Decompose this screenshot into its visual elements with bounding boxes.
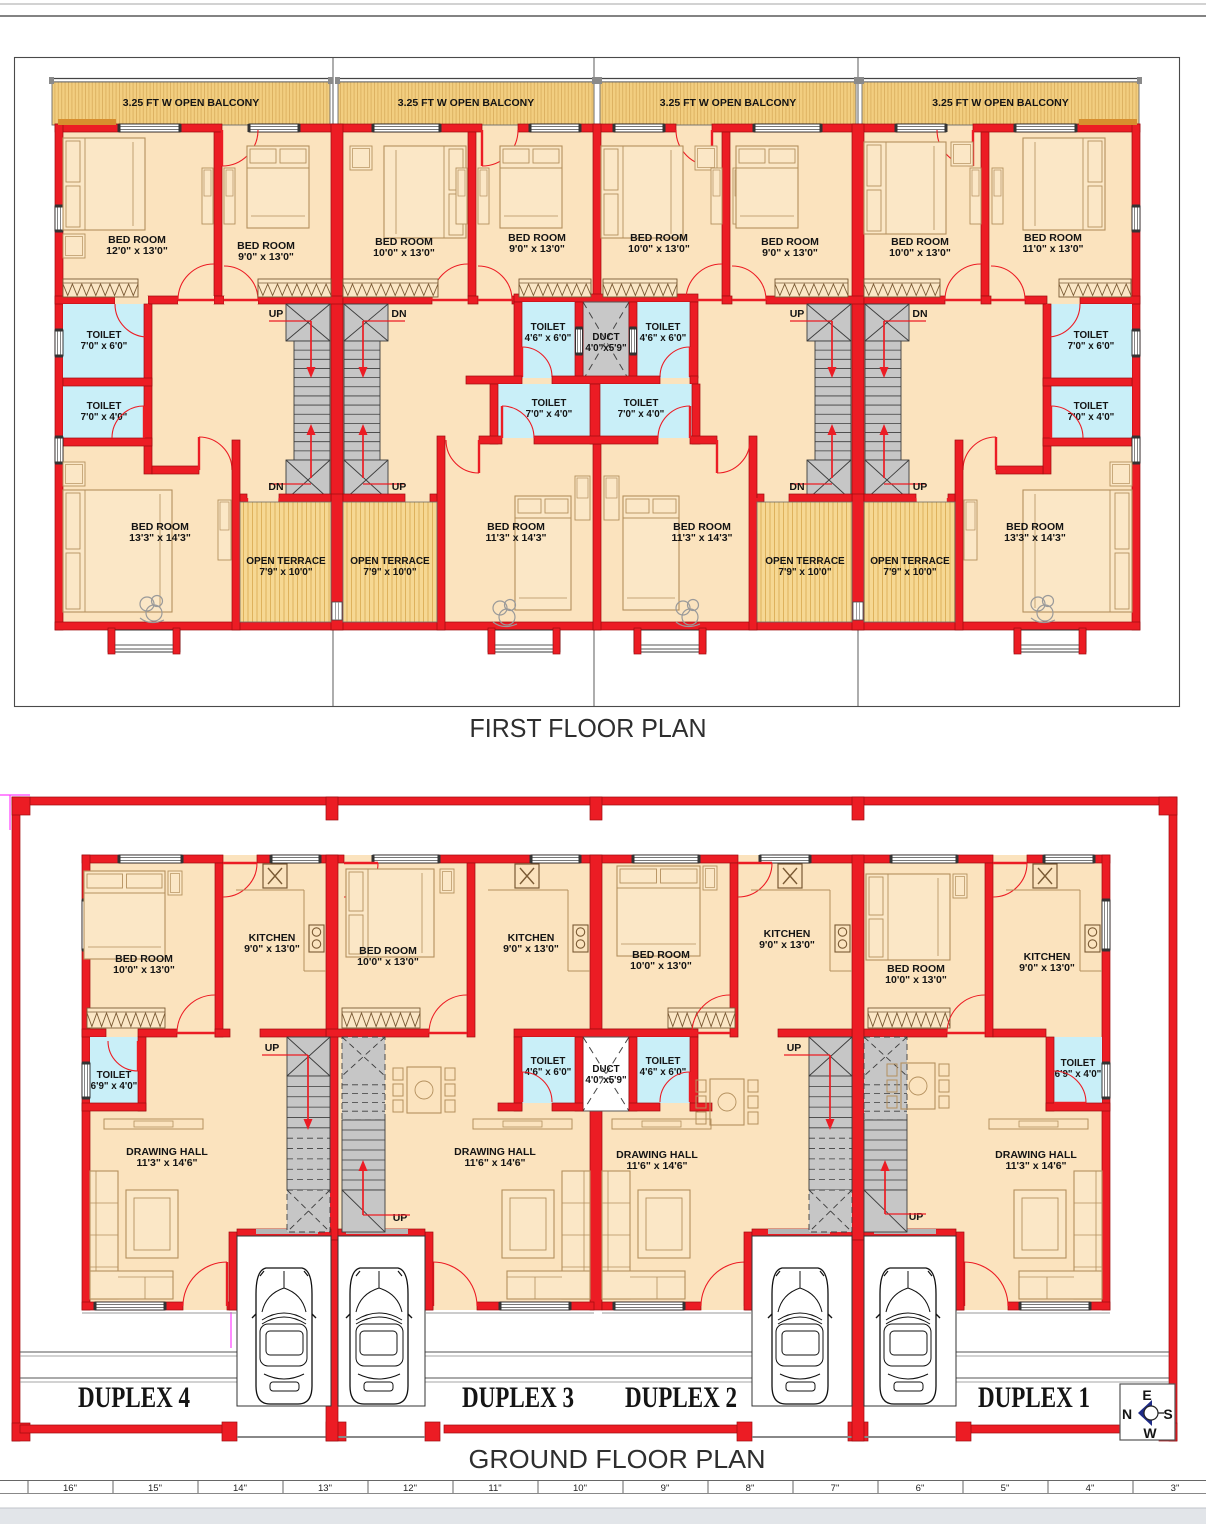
svg-text:7'9" x 10'0": 7'9" x 10'0" <box>883 567 936 578</box>
svg-text:DUCT: DUCT <box>592 332 619 343</box>
svg-text:3.25 FT W OPEN BALCONY: 3.25 FT W OPEN BALCONY <box>123 97 260 109</box>
svg-text:7'0" x 4'0": 7'0" x 4'0" <box>618 409 665 420</box>
svg-text:7": 7" <box>831 1483 840 1494</box>
svg-text:10": 10" <box>573 1483 587 1494</box>
svg-text:9'0" x 13'0": 9'0" x 13'0" <box>238 251 294 263</box>
svg-text:TOILET: TOILET <box>646 322 681 333</box>
svg-text:11'3" x 14'6": 11'3" x 14'6" <box>136 1157 197 1169</box>
svg-text:4'6" x 6'0": 4'6" x 6'0" <box>525 333 572 344</box>
svg-text:OPEN TERRACE: OPEN TERRACE <box>350 556 430 567</box>
svg-text:12'0" x 13'0": 12'0" x 13'0" <box>106 245 168 257</box>
svg-text:3.25 FT W OPEN BALCONY: 3.25 FT W OPEN BALCONY <box>660 97 797 109</box>
svg-text:OPEN TERRACE: OPEN TERRACE <box>870 556 950 567</box>
svg-text:6'9" x 4'0": 6'9" x 4'0" <box>91 1081 138 1092</box>
svg-text:TOILET: TOILET <box>1074 401 1109 412</box>
svg-text:TOILET: TOILET <box>646 1056 681 1067</box>
svg-text:11'0" x 13'0": 11'0" x 13'0" <box>1022 243 1083 255</box>
svg-text:7'0" x 4'0": 7'0" x 4'0" <box>526 409 573 420</box>
svg-text:9": 9" <box>661 1483 670 1494</box>
svg-text:DUPLEX 3: DUPLEX 3 <box>462 1381 574 1414</box>
svg-text:DUPLEX 2: DUPLEX 2 <box>625 1381 737 1414</box>
svg-text:4'0"x5'9": 4'0"x5'9" <box>585 1075 626 1086</box>
svg-text:FIRST FLOOR PLAN: FIRST FLOOR PLAN <box>470 713 707 743</box>
svg-text:7'9" x 10'0": 7'9" x 10'0" <box>363 567 416 578</box>
svg-text:DUCT: DUCT <box>592 1064 619 1075</box>
svg-text:4'6" x 6'0": 4'6" x 6'0" <box>640 1067 687 1078</box>
svg-text:OPEN TERRACE: OPEN TERRACE <box>246 556 326 567</box>
svg-text:TOILET: TOILET <box>1074 330 1109 341</box>
svg-text:9'0" x 13'0": 9'0" x 13'0" <box>503 943 559 955</box>
svg-text:9'0" x 13'0": 9'0" x 13'0" <box>509 243 565 255</box>
svg-text:DN: DN <box>268 481 283 493</box>
svg-text:DN: DN <box>789 481 804 493</box>
svg-text:TOILET: TOILET <box>87 401 122 412</box>
svg-text:DUPLEX 1: DUPLEX 1 <box>978 1381 1090 1414</box>
svg-text:UP: UP <box>787 1042 802 1054</box>
svg-text:11'3" x 14'3": 11'3" x 14'3" <box>485 532 546 544</box>
svg-text:11'6" x 14'6": 11'6" x 14'6" <box>626 1160 687 1172</box>
svg-text:DUPLEX 4: DUPLEX 4 <box>78 1381 190 1414</box>
svg-text:10'0" x 13'0": 10'0" x 13'0" <box>885 974 947 986</box>
svg-text:13'3" x 14'3": 13'3" x 14'3" <box>129 532 191 544</box>
svg-text:4'6" x 6'0": 4'6" x 6'0" <box>525 1067 572 1078</box>
svg-text:TOILET: TOILET <box>531 1056 566 1067</box>
svg-text:10'0" x 13'0": 10'0" x 13'0" <box>113 964 175 976</box>
svg-text:S: S <box>1163 1406 1172 1422</box>
svg-text:W: W <box>1143 1425 1157 1441</box>
svg-text:UP: UP <box>393 1212 408 1224</box>
svg-text:UP: UP <box>265 1042 280 1054</box>
svg-text:6'9" x 4'0": 6'9" x 4'0" <box>1055 1069 1102 1080</box>
svg-text:9'0" x 13'0": 9'0" x 13'0" <box>1019 962 1075 974</box>
svg-text:TOILET: TOILET <box>531 322 566 333</box>
svg-text:DN: DN <box>912 308 927 320</box>
svg-text:14": 14" <box>233 1483 247 1494</box>
svg-text:TOILET: TOILET <box>624 398 659 409</box>
svg-text:13": 13" <box>318 1483 332 1494</box>
svg-text:4'0"x5'9": 4'0"x5'9" <box>585 343 626 354</box>
svg-text:15": 15" <box>148 1483 162 1494</box>
svg-text:11'3" x 14'3": 11'3" x 14'3" <box>671 532 732 544</box>
svg-text:OPEN TERRACE: OPEN TERRACE <box>765 556 845 567</box>
svg-text:11": 11" <box>488 1483 501 1494</box>
svg-text:UP: UP <box>790 308 805 320</box>
svg-text:3.25 FT W OPEN BALCONY: 3.25 FT W OPEN BALCONY <box>398 97 535 109</box>
svg-text:5": 5" <box>1001 1483 1010 1494</box>
svg-text:GROUND FLOOR PLAN: GROUND FLOOR PLAN <box>469 1444 766 1474</box>
svg-text:3": 3" <box>1171 1483 1180 1494</box>
svg-text:9'0" x 13'0": 9'0" x 13'0" <box>762 247 818 259</box>
svg-text:N: N <box>1122 1406 1132 1422</box>
svg-text:11'6" x 14'6": 11'6" x 14'6" <box>464 1157 525 1169</box>
svg-text:11'3" x 14'6": 11'3" x 14'6" <box>1005 1160 1066 1172</box>
svg-text:TOILET: TOILET <box>87 330 122 341</box>
svg-text:10'0" x 13'0": 10'0" x 13'0" <box>357 956 419 968</box>
svg-text:16": 16" <box>63 1483 77 1494</box>
svg-text:7'0" x 6'0": 7'0" x 6'0" <box>1068 341 1115 352</box>
svg-text:7'9" x 10'0": 7'9" x 10'0" <box>259 567 312 578</box>
svg-text:E: E <box>1142 1387 1151 1403</box>
svg-text:9'0" x 13'0": 9'0" x 13'0" <box>244 943 300 955</box>
svg-text:UP: UP <box>269 308 284 320</box>
svg-text:UP: UP <box>913 481 928 493</box>
svg-text:4": 4" <box>1086 1483 1095 1494</box>
svg-text:13'3" x 14'3": 13'3" x 14'3" <box>1004 532 1066 544</box>
svg-text:9'0" x 13'0": 9'0" x 13'0" <box>759 939 815 951</box>
svg-text:10'0" x 13'0": 10'0" x 13'0" <box>628 243 690 255</box>
svg-text:12": 12" <box>403 1483 417 1494</box>
svg-text:6": 6" <box>916 1483 925 1494</box>
svg-text:8": 8" <box>746 1483 755 1494</box>
svg-text:3.25 FT W OPEN BALCONY: 3.25 FT W OPEN BALCONY <box>932 97 1069 109</box>
svg-text:10'0" x 13'0": 10'0" x 13'0" <box>889 247 951 259</box>
svg-text:UP: UP <box>909 1211 924 1223</box>
svg-text:7'0" x 6'0": 7'0" x 6'0" <box>81 341 128 352</box>
svg-text:4'6" x 6'0": 4'6" x 6'0" <box>640 333 687 344</box>
svg-text:TOILET: TOILET <box>97 1070 132 1081</box>
svg-text:7'0" x 4'0": 7'0" x 4'0" <box>81 412 128 423</box>
svg-text:7'0" x 4'0": 7'0" x 4'0" <box>1068 412 1115 423</box>
svg-text:TOILET: TOILET <box>532 398 567 409</box>
svg-text:DN: DN <box>391 308 406 320</box>
svg-text:7'9" x 10'0": 7'9" x 10'0" <box>778 567 831 578</box>
svg-text:TOILET: TOILET <box>1061 1058 1096 1069</box>
svg-text:10'0" x 13'0": 10'0" x 13'0" <box>373 247 435 259</box>
svg-text:10'0" x 13'0": 10'0" x 13'0" <box>630 960 692 972</box>
svg-text:UP: UP <box>392 481 407 493</box>
